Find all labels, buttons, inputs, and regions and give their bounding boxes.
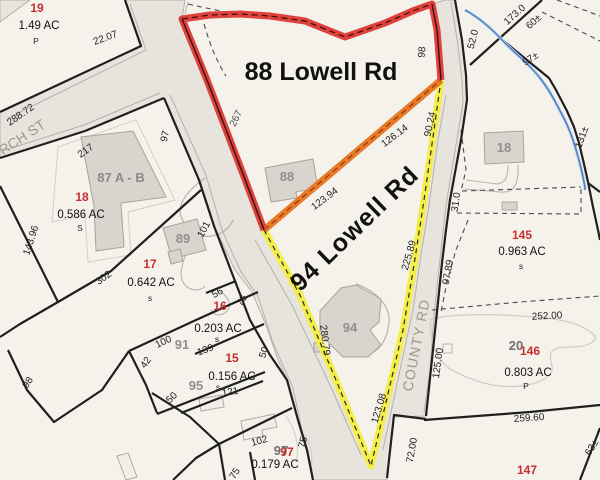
svg-text:91: 91 [175,337,189,352]
svg-text:0.642 AC: 0.642 AC [127,277,174,289]
svg-text:94: 94 [343,320,358,335]
svg-text:146: 146 [520,344,540,358]
svg-text:19: 19 [30,1,44,15]
svg-text:88: 88 [280,169,294,184]
svg-text:0.179 AC: 0.179 AC [251,459,298,471]
svg-text:89: 89 [176,231,190,246]
svg-text:P: P [33,36,39,46]
svg-text:98: 98 [417,46,429,58]
svg-text:1.49 AC: 1.49 AC [19,20,60,32]
svg-text:s: s [148,293,152,303]
svg-text:97: 97 [280,445,294,459]
svg-text:145: 145 [512,228,532,242]
svg-text:16: 16 [213,299,227,313]
svg-text:s: s [519,261,523,271]
svg-text:P: P [523,381,529,391]
svg-text:18: 18 [75,190,89,204]
svg-text:87 A - B: 87 A - B [97,170,144,185]
svg-text:s: s [216,382,220,392]
svg-text:252.00: 252.00 [532,310,564,323]
svg-text:s: s [215,334,219,344]
svg-text:0.803 AC: 0.803 AC [504,367,551,379]
svg-text:95: 95 [189,378,203,393]
svg-text:0.586 AC: 0.586 AC [57,209,104,221]
svg-text:88 Lowell Rd: 88 Lowell Rd [245,58,398,86]
svg-text:S: S [77,223,83,233]
svg-text:0.963 AC: 0.963 AC [498,246,545,258]
svg-text:18: 18 [497,140,511,155]
svg-text:17: 17 [143,257,157,271]
svg-text:259.60: 259.60 [513,412,545,425]
svg-text:15: 15 [225,351,239,365]
svg-text:147: 147 [517,463,537,477]
